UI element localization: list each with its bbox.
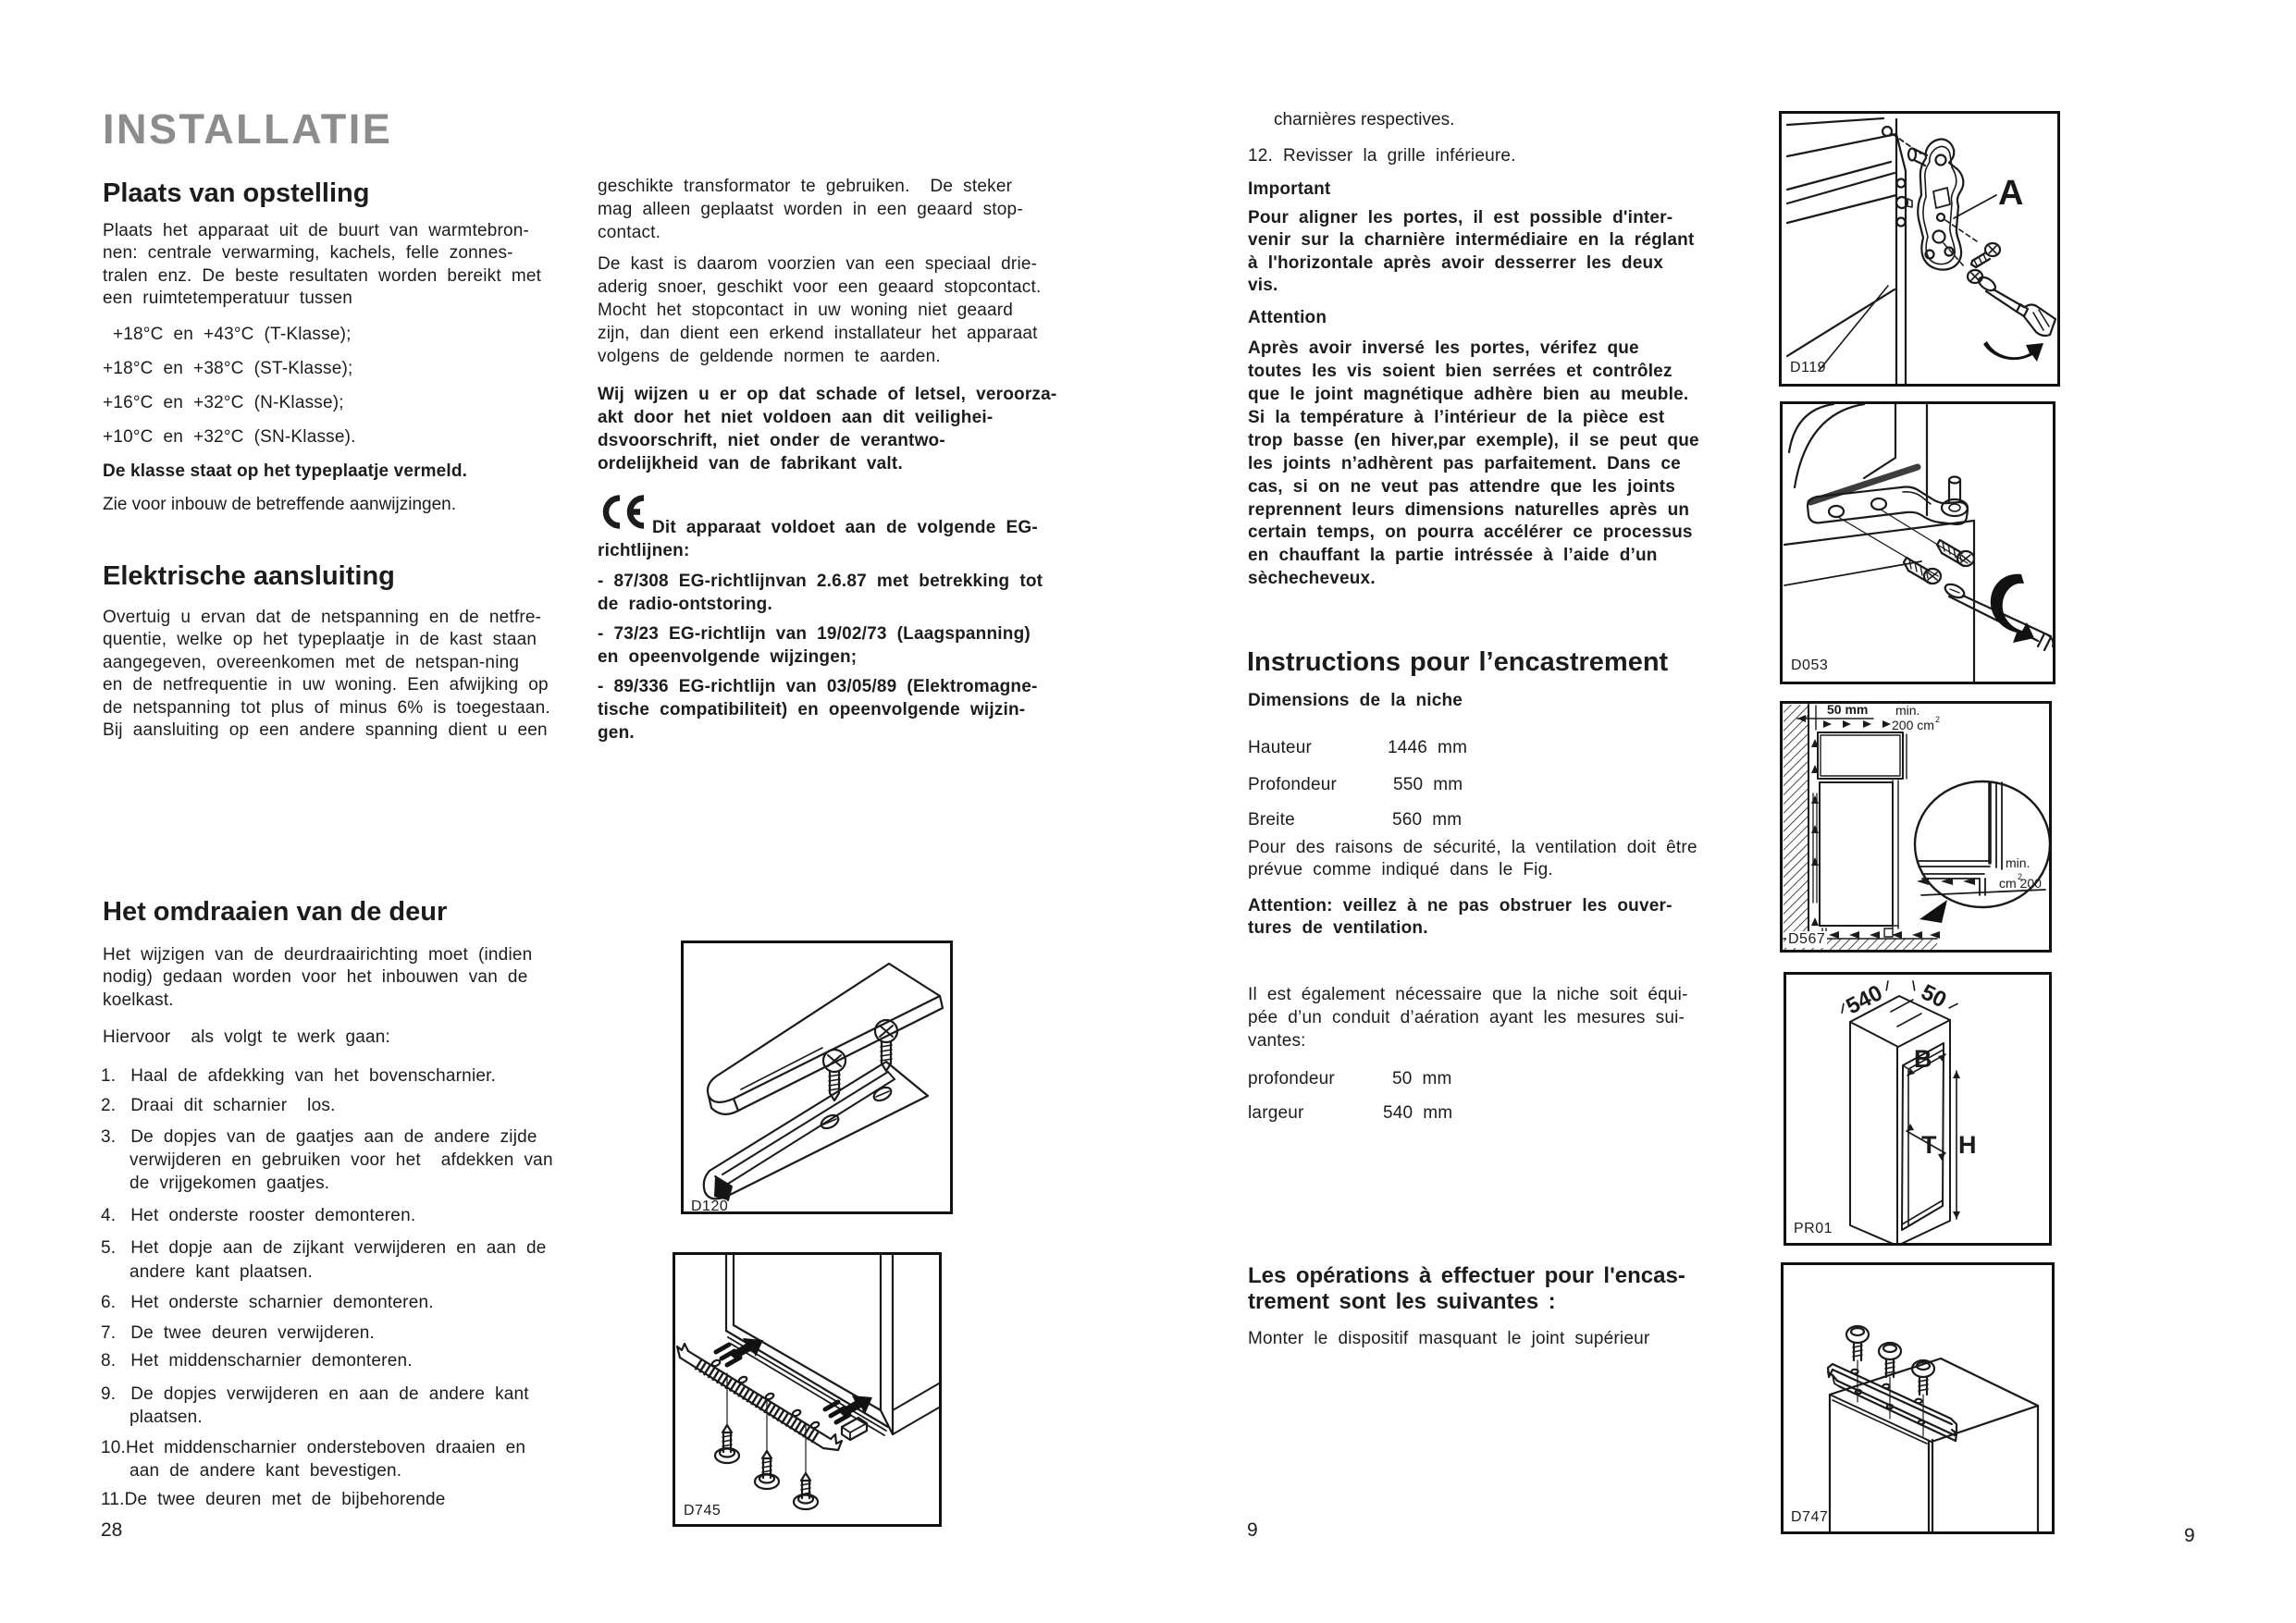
svg-text:200 cm: 200 cm: [1892, 718, 1934, 732]
svg-text:T: T: [1921, 1131, 1937, 1159]
svg-text:A: A: [1998, 174, 2023, 213]
svg-text:min.: min.: [1895, 704, 1920, 718]
svg-text:2: 2: [1935, 715, 1940, 724]
svg-text:50 mm: 50 mm: [1827, 704, 1868, 717]
svg-text:B: B: [1914, 1045, 1932, 1073]
svg-text:H: H: [1958, 1131, 1977, 1159]
svg-text:2: 2: [2018, 872, 2022, 881]
svg-text:50: 50: [1917, 979, 1950, 1013]
svg-text:min.: min.: [2006, 855, 2030, 870]
